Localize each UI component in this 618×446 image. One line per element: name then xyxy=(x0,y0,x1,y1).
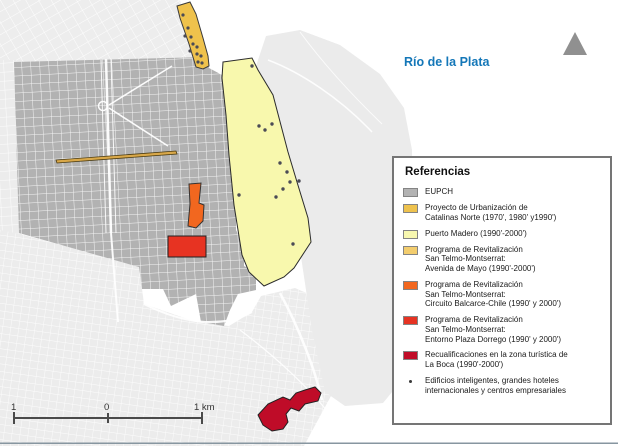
legend-label: Recualificaciones en la zona turística d… xyxy=(425,350,568,360)
legend-label: Circuito Balcarce-Chile (1990' y 2000') xyxy=(425,299,561,309)
legend-label: San Telmo-Montserrat: xyxy=(425,325,561,335)
legend-item-catalinas-norte: Proyecto de Urbanización de Catalinas No… xyxy=(403,203,602,223)
legend-label: San Telmo-Montserrat: xyxy=(425,290,561,300)
scale-label-right: 1 km xyxy=(194,402,215,413)
legend-item-eupch: EUPCH xyxy=(403,187,602,197)
legend-label: Avenida de Mayo (1990'-2000') xyxy=(425,264,536,274)
legend-title: Referencias xyxy=(405,166,602,178)
legend-item-plaza-dorrego: Programa de Revitalización San Telmo-Mon… xyxy=(403,315,602,344)
land-top-left xyxy=(0,0,196,63)
legend-panel: Referencias EUPCH Proyecto de Urbanizaci… xyxy=(392,156,612,425)
legend-label: Edificios inteligentes, grandes hoteles xyxy=(425,376,566,386)
legend-item-puerto-madero: Puerto Madero (1990'-2000') xyxy=(403,229,602,239)
legend-label: internacionales y centros empresariales xyxy=(425,386,566,396)
catalinas-swatch xyxy=(403,204,418,213)
map-canvas: 1 0 1 km Río de la Plata Referencias EUP… xyxy=(0,0,618,446)
legend-item-balcarce-chile: Programa de Revitalización San Telmo-Mon… xyxy=(403,280,602,309)
building-dot-marker xyxy=(403,377,418,386)
scale-label-mid: 0 xyxy=(104,402,109,413)
avenida-swatch xyxy=(403,246,418,255)
legend-label: Entorno Plaza Dorrego (1990' y 2000') xyxy=(425,335,561,345)
la-boca-swatch xyxy=(403,351,418,360)
dorrego-swatch xyxy=(403,316,418,325)
balcarce-swatch xyxy=(403,281,418,290)
legend-item-la-boca: Recualificaciones en la zona turística d… xyxy=(403,350,602,370)
legend-item-avenida-de-mayo: Programa de Revitalización San Telmo-Mon… xyxy=(403,245,602,274)
plaza-dorrego-area xyxy=(168,236,206,257)
legend-label: Proyecto de Urbanización de xyxy=(425,203,556,213)
legend-item-edificios: Edificios inteligentes, grandes hoteles … xyxy=(403,376,602,396)
legend-label: La Boca (1990'-2000') xyxy=(425,360,568,370)
legend-label: Programa de Revitalización xyxy=(425,245,536,255)
legend-label: Catalinas Norte (1970', 1980' y1990') xyxy=(425,213,556,223)
bottom-border-line xyxy=(0,443,618,445)
legend-label: Programa de Revitalización xyxy=(425,280,561,290)
legend-label: Puerto Madero (1990'-2000') xyxy=(425,229,527,239)
puerto-madero-swatch xyxy=(403,230,418,239)
legend-label: San Telmo-Montserrat: xyxy=(425,254,536,264)
legend-label: Programa de Revitalización xyxy=(425,315,561,325)
eupch-swatch xyxy=(403,188,418,197)
legend-label: EUPCH xyxy=(425,187,453,197)
scale-label-left: 1 xyxy=(11,402,16,413)
river-label: Río de la Plata xyxy=(404,55,490,69)
